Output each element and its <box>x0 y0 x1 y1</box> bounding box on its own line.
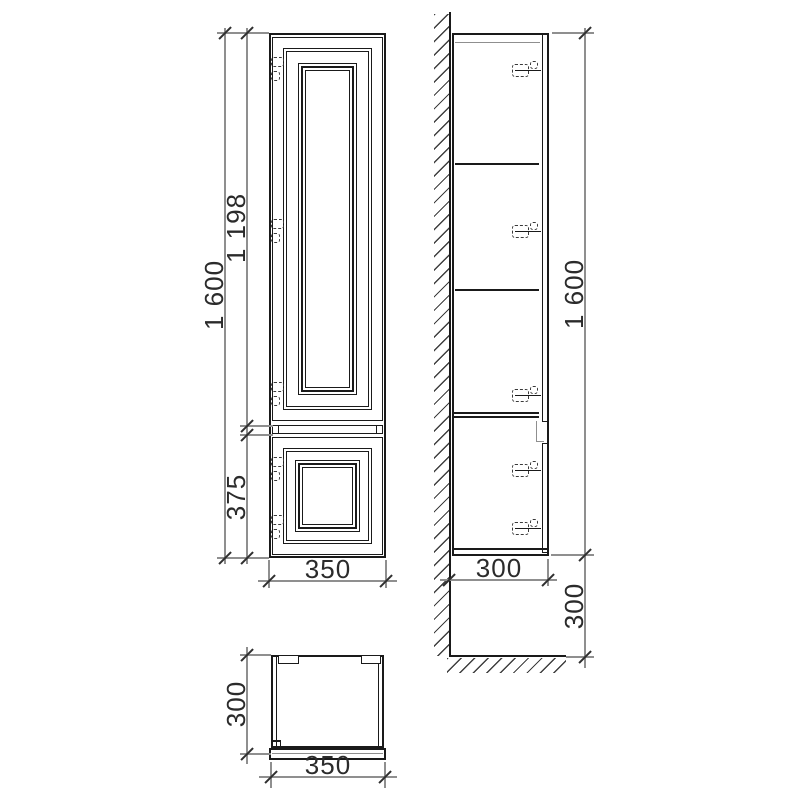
corner-detail-line <box>280 740 282 747</box>
dim-label-top-depth: 300 <box>223 681 249 727</box>
hanging-bracket <box>278 655 299 664</box>
technical-drawing-canvas: 1 600 1 198 375 350 <box>0 0 800 800</box>
dim-label-top-width: 350 <box>305 752 351 778</box>
top-view-outline <box>271 655 384 748</box>
hanging-bracket <box>361 655 381 664</box>
side-wall-inner-line <box>378 657 379 746</box>
side-wall-inner-line <box>276 657 277 746</box>
top-view: 300 350 <box>0 0 800 800</box>
